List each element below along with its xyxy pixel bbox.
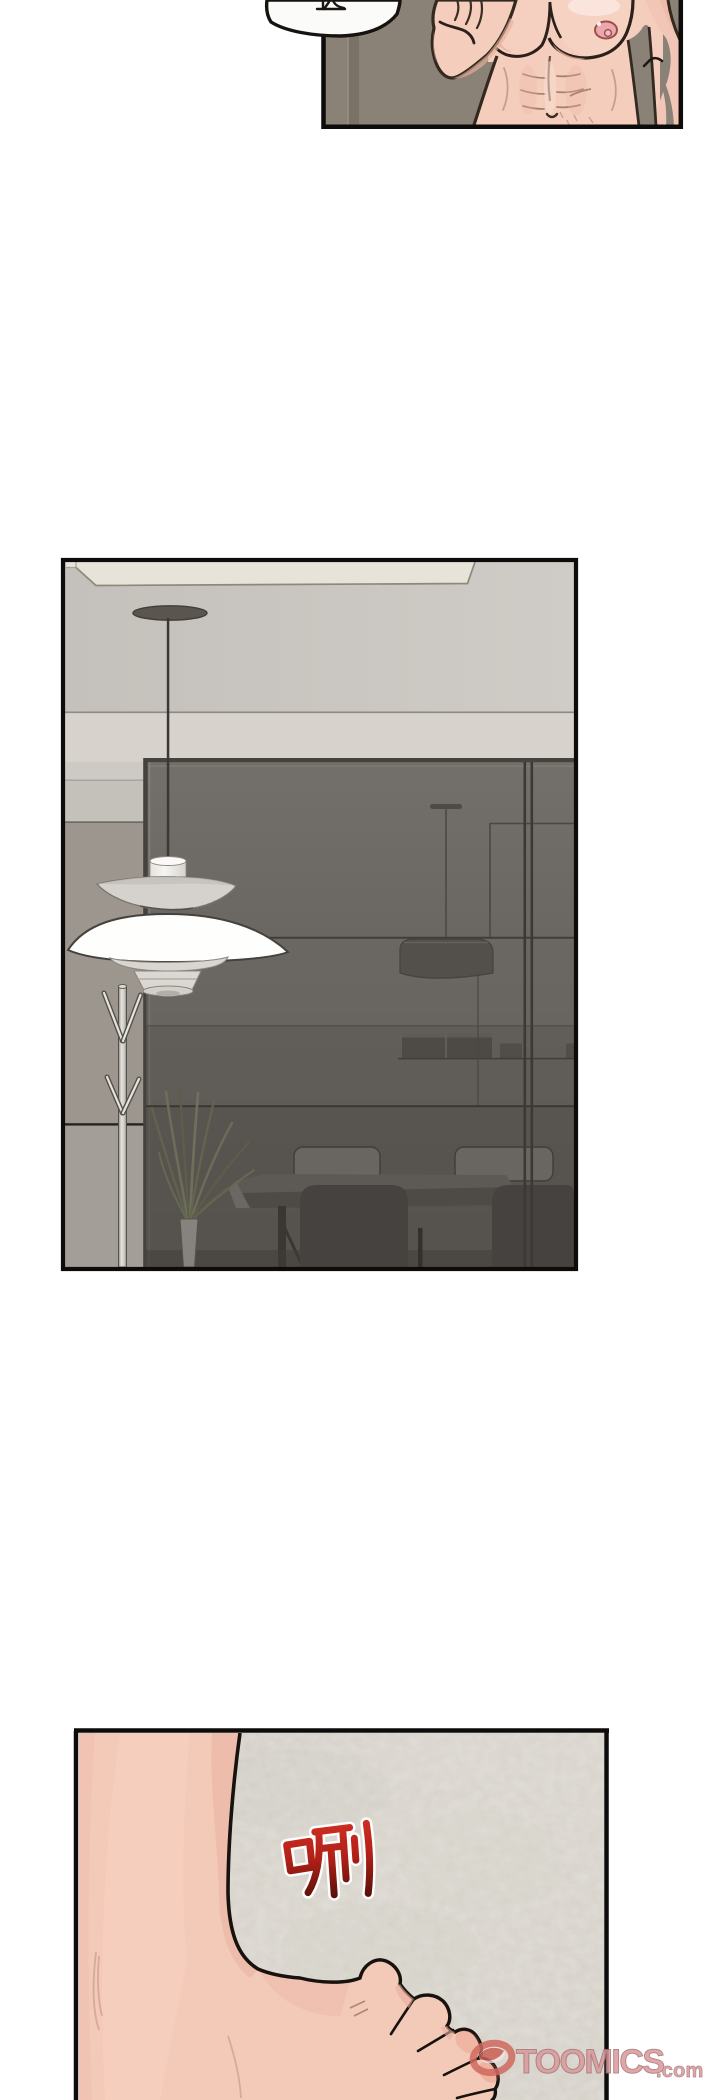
svg-text:.com: .com	[656, 2060, 703, 2082]
svg-text:TOOMICS: TOOMICS	[516, 2043, 664, 2081]
